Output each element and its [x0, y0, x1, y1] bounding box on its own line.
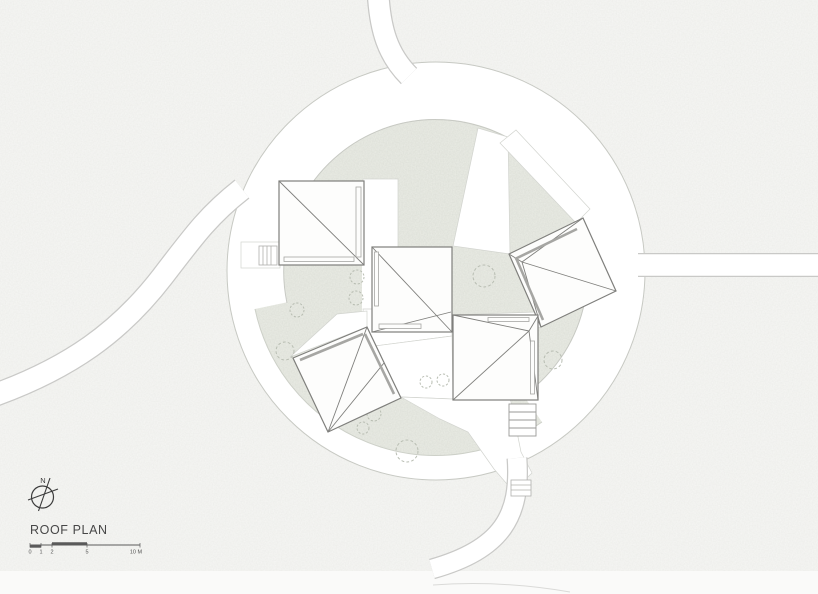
roof-plan-drawing: N ROOF PLAN 0 1 2 5 10 M [0, 0, 818, 594]
roof-skylight-strip [375, 252, 379, 306]
roof-skylight-strip [284, 257, 354, 262]
steps-west-entrance [259, 246, 277, 265]
roof-skylight-strip [356, 187, 361, 257]
scale-label-1: 1 [39, 550, 42, 556]
roof-center [372, 247, 452, 332]
steps-south [509, 404, 536, 436]
plan-title: ROOF PLAN [30, 523, 108, 537]
roof-skylight-strip [488, 318, 529, 322]
scale-label-10: 10 M [130, 550, 143, 556]
steps-south-exit [511, 480, 531, 496]
scale-label-5: 5 [85, 550, 88, 556]
roof-northwest [279, 181, 364, 265]
paper-clean-strip [0, 571, 818, 594]
scale-label-2: 2 [50, 550, 53, 556]
court-path-notch [363, 179, 398, 249]
roof-skylight-strip [531, 341, 535, 394]
roof-south [453, 315, 538, 400]
north-label: N [40, 476, 45, 485]
drawing-canvas: N ROOF PLAN 0 1 2 5 10 M [0, 0, 818, 594]
roof-skylight-strip [379, 324, 421, 329]
scale-label-0: 0 [28, 550, 31, 556]
